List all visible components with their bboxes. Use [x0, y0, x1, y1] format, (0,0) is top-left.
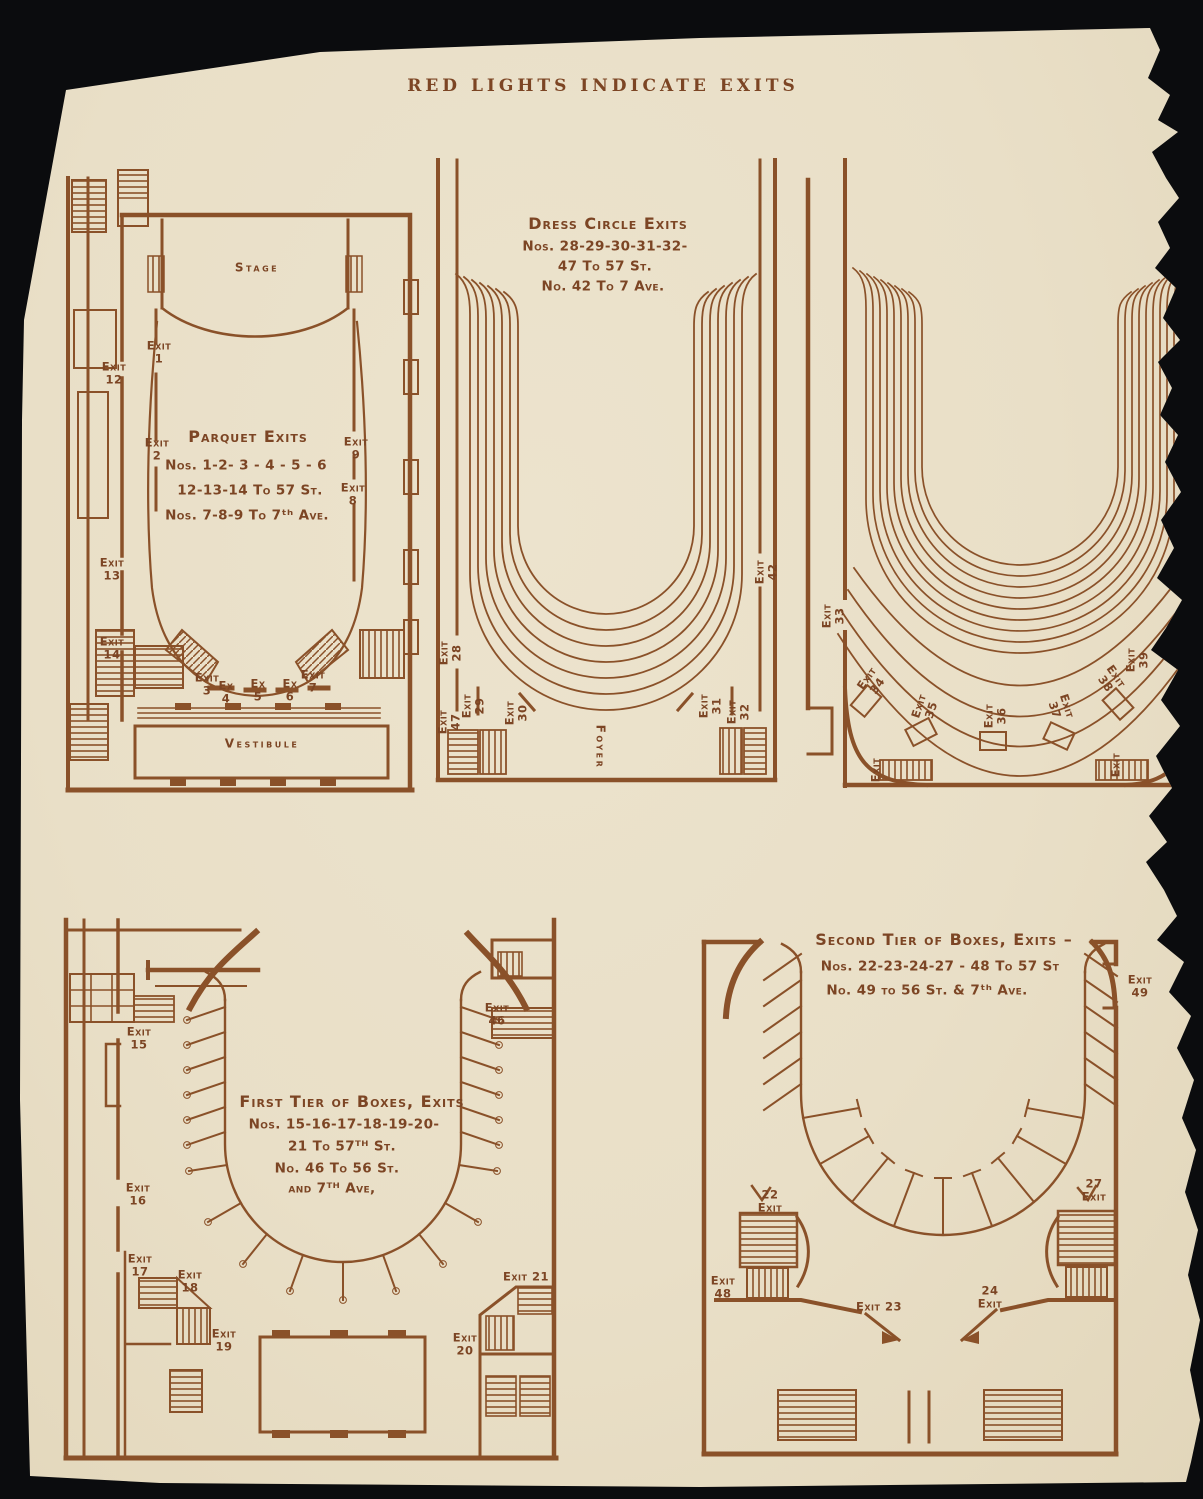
- exit-13-label: Exit 13: [100, 556, 124, 581]
- exit-42-label: Exit 42: [753, 560, 778, 584]
- exit-39-label: Exit 39: [1124, 648, 1149, 672]
- exit-33-label: Exit 33: [820, 604, 845, 628]
- exit-27-label: 27 Exit: [1082, 1177, 1106, 1202]
- exit-23-label: Exit 23: [856, 1301, 902, 1314]
- exit-30-label: Exit 30: [503, 701, 528, 725]
- exit-16-label: Exit 16: [126, 1181, 150, 1206]
- exit-14-label: Exit 14: [100, 635, 124, 660]
- exit-22-label: 22 Exit: [758, 1188, 782, 1213]
- second-tier-note-title: Second Tier of Boxes, Exits –: [815, 931, 1073, 949]
- parquet-plan-drawing: [60, 160, 435, 800]
- parquet-note-title: Parquet Exits: [188, 428, 308, 446]
- exit-18-label: Exit 18: [178, 1268, 202, 1293]
- first-tier-note-line: No. 46 To 56 St.: [275, 1162, 400, 1177]
- exit-7-label: Exit 7: [301, 668, 325, 693]
- balcony-corner-exit-label: Exit: [870, 758, 883, 782]
- balcony-corner-exit-label: Exit: [1110, 753, 1123, 777]
- parquet-note-line: Nos. 7-8-9 To 7ᵗʰ Ave.: [165, 509, 329, 524]
- exit-5-label: Ex 5: [250, 677, 265, 702]
- exit-32-label: Exit 32: [725, 700, 750, 724]
- second-tier-note-line: No. 49 to 56 St. & 7ᵗʰ Ave.: [826, 984, 1027, 999]
- vestibule-label: Vestibule: [225, 737, 300, 750]
- exit-24-label: 24 Exit: [978, 1284, 1002, 1309]
- program-page: RED LIGHTS INDICATE EXITS: [0, 0, 1203, 1499]
- first-tier-note-title: First Tier of Boxes, Exits: [239, 1093, 464, 1111]
- stage-label: Stage: [235, 261, 279, 274]
- exit-15-label: Exit 15: [127, 1025, 151, 1050]
- exit-8-label: Exit 8: [341, 481, 365, 506]
- dress-circle-note-line: Nos. 28-29-30-31-32-: [522, 240, 687, 255]
- second-tier-note-line: Nos. 22-23-24-27 - 48 To 57 St: [821, 960, 1060, 975]
- exit-21-label: Exit 21: [503, 1271, 549, 1284]
- exit-49-label: Exit 49: [1128, 973, 1152, 998]
- exit-2-label: Exit 2: [145, 436, 169, 461]
- page-title: RED LIGHTS INDICATE EXITS: [407, 76, 799, 96]
- foyer-label: Foyer: [593, 725, 606, 770]
- exit-46-label: Exit 46: [485, 1001, 509, 1026]
- first-tier-note-line: and 7ᵀᴴ Ave,: [288, 1182, 375, 1197]
- dress-circle-note-line: 47 To 57 St.: [558, 260, 652, 275]
- exit-1-label: Exit 1: [147, 339, 171, 364]
- exit-12-label: Exit 12: [102, 360, 126, 385]
- exit-17-label: Exit 17: [128, 1252, 152, 1277]
- exit-36-label: Exit 36: [982, 704, 1007, 728]
- exit-29-label: Exit 29: [460, 694, 485, 718]
- exit-47-label: Exit 47: [436, 710, 461, 734]
- scan-background: RED LIGHTS INDICATE EXITS: [0, 0, 1203, 1499]
- first-tier-note-line: 21 To 57ᵀᴴ St.: [288, 1140, 396, 1155]
- exit-19-label: Exit 19: [212, 1327, 236, 1352]
- exit-9-label: Exit 9: [344, 435, 368, 460]
- dress-circle-note-title: Dress Circle Exits: [528, 215, 688, 233]
- parquet-note-line: Nos. 1-2- 3 - 4 - 5 - 6: [165, 459, 327, 474]
- exit-6-label: Ex 6: [282, 677, 297, 702]
- balcony-plan-drawing: [796, 148, 1203, 798]
- exit-20-label: Exit 20: [453, 1331, 477, 1356]
- exit-4-label: Ex 4: [218, 679, 233, 704]
- first-tier-note-line: Nos. 15-16-17-18-19-20-: [249, 1118, 440, 1133]
- dress-circle-note-line: No. 42 To 7 Ave.: [541, 280, 664, 295]
- exit-31-label: Exit 31: [697, 694, 722, 718]
- parquet-note-line: 12-13-14 To 57 St.: [177, 484, 323, 499]
- exit-28-label: Exit 28: [437, 641, 462, 665]
- exit-48-label: Exit 48: [711, 1274, 735, 1299]
- exit-3-label: Exit 3: [195, 671, 219, 696]
